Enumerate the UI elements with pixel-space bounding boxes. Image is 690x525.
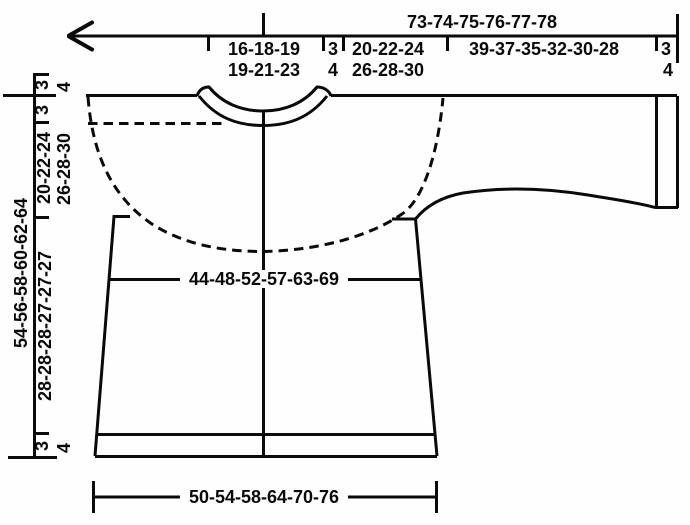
total-width-label: 73-74-75-76-77-78 [407, 13, 557, 31]
top-edge-label-a: 3 [33, 80, 51, 90]
yoke-top-width-label-line1: 20-22-24 [352, 40, 424, 58]
hem-edge-label-a: 3 [33, 441, 51, 451]
cuff-edge-label-line1: 3 [661, 40, 671, 58]
pattern-schematic: 73-74-75-76-77-78 16-18-19 19-21-23 3 4 … [0, 0, 690, 525]
yoke-depth-label-b: 26-28-30 [55, 133, 73, 205]
neck-width-label-line2: 19-21-23 [228, 61, 300, 79]
neck-depth-label: 3 [33, 105, 51, 115]
yoke-dashed-curve [88, 97, 443, 252]
cuff-edge-label-line2: 4 [663, 61, 673, 79]
chest-width-label: 44-48-52-57-63-69 [180, 270, 348, 288]
sleeve-length-label: 39-37-35-32-30-28 [469, 40, 619, 58]
neck-width-label-line1: 16-18-19 [228, 40, 300, 58]
yoke-depth-label-a: 20-22-24 [35, 132, 53, 204]
bottom-width-label: 50-54-58-64-70-76 [180, 488, 348, 506]
body-length-label: 28-28-28-27-27-27 [36, 251, 54, 401]
schematic-drawing [0, 0, 690, 525]
yoke-dashed-lines [88, 97, 443, 252]
top-edge-label-b: 4 [55, 82, 73, 92]
total-length-label: 54-56-58-60-62-64 [12, 198, 30, 348]
garment-outline [86, 87, 678, 457]
shoulder-edge-label-line2: 4 [328, 61, 338, 79]
yoke-top-width-label-line2: 26-28-30 [352, 61, 424, 79]
hem-edge-label-b: 4 [55, 443, 73, 453]
shoulder-edge-label-line1: 3 [328, 40, 338, 58]
